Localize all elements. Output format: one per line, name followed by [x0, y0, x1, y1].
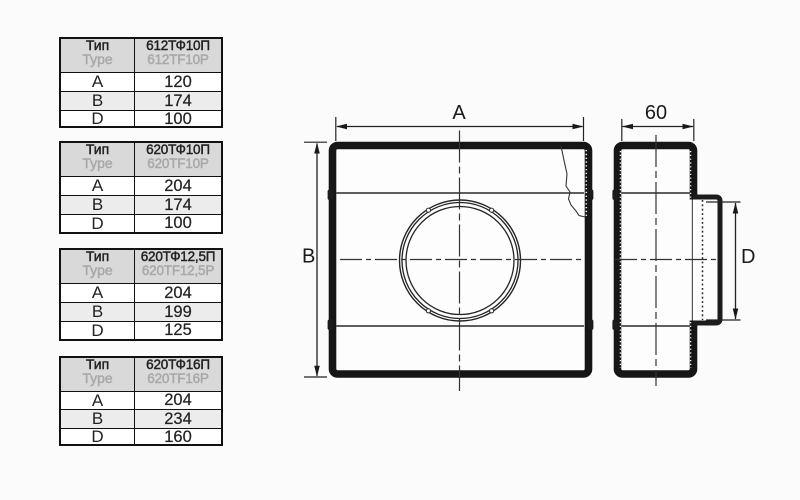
svg-text:B: B: [302, 246, 315, 268]
svg-text:A: A: [452, 102, 466, 124]
svg-text:60: 60: [645, 102, 667, 124]
svg-text:D: D: [741, 246, 755, 268]
